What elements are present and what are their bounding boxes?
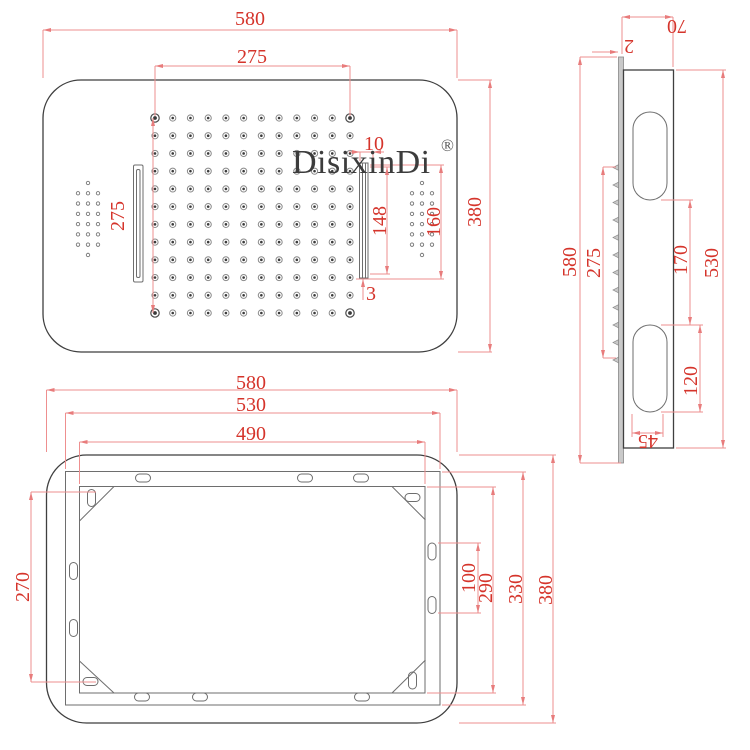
side-dim-depth: 70 <box>667 16 687 36</box>
front-dim-slot-length: 148 <box>370 206 390 236</box>
back-dim-overall-height: 380 <box>536 575 556 605</box>
back-dim-frame-width: 530 <box>236 395 266 415</box>
back-dim-frame-inner-h: 290 <box>476 573 496 603</box>
registered-icon: ® <box>441 137 454 154</box>
back-dim-overall-width: 580 <box>236 373 266 393</box>
back-view <box>29 388 556 723</box>
front-dim-overall-width: 580 <box>235 9 265 29</box>
side-dim-nozzle-span: 275 <box>584 248 604 278</box>
technical-drawing-sheet: DisixinDi ® 580 275 275 380 10 148 160 3… <box>0 0 750 750</box>
back-dim-frame-height: 330 <box>506 574 526 604</box>
side-dim-slot-gap: 170 <box>671 245 691 275</box>
front-dim-nozzle-span-v: 275 <box>108 201 128 231</box>
front-dim-nozzle-span-h: 275 <box>237 47 267 67</box>
front-dim-slot-offset: 3 <box>366 284 376 304</box>
side-dim-length: 580 <box>560 247 580 277</box>
front-dim-slot-width: 10 <box>364 134 384 154</box>
front-dim-slot-recess: 160 <box>424 207 444 237</box>
back-dim-frame-inner-w: 490 <box>236 424 266 444</box>
side-dim-slot-width: 45 <box>638 431 658 451</box>
front-dim-overall-height: 380 <box>465 197 485 227</box>
side-dim-body-length: 530 <box>702 248 722 278</box>
side-view <box>578 15 726 463</box>
side-dim-panel-thick: 2 <box>624 36 634 56</box>
drawing-linework <box>0 0 750 750</box>
brand-text: DisixinDi <box>292 146 431 180</box>
front-view <box>43 28 492 352</box>
back-dim-mount-span: 270 <box>13 572 33 602</box>
side-dim-slot-length: 120 <box>681 366 701 396</box>
